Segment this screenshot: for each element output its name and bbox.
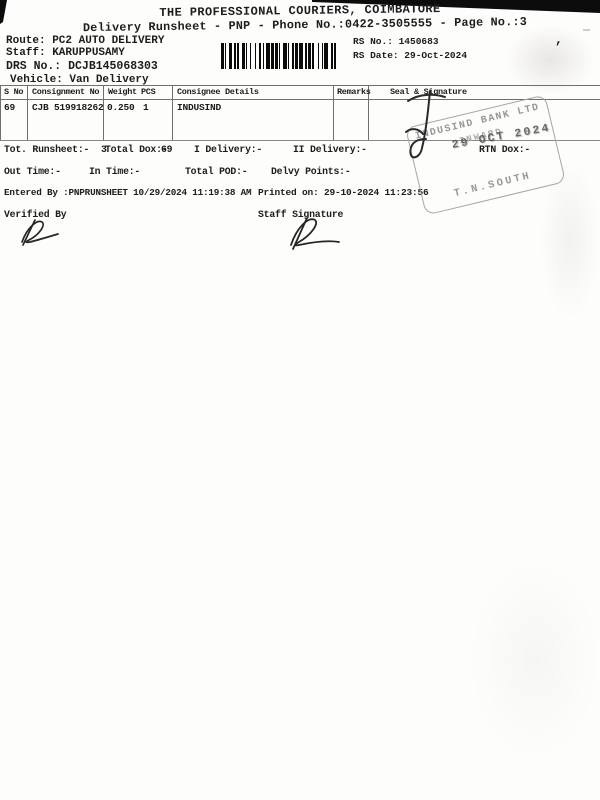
col-header-consignment: Consignment No [32, 88, 99, 97]
rtn-dox-label: RTN Dox:- [479, 145, 530, 156]
table-col-border [172, 85, 173, 140]
route-field: Route: PC2 AUTO DELIVERY [6, 35, 164, 47]
verified-by-signature [16, 217, 62, 247]
col-header-consignee: Consignee Details [177, 88, 259, 97]
cell-sno: 69 [4, 103, 15, 113]
seal-signature [398, 88, 454, 170]
col-header-pcs: PCS [141, 88, 155, 97]
table-top-border [0, 85, 600, 86]
ii-delivery-label: II Delivery:- [293, 145, 367, 156]
entered-by-line: Entered By :PNPRUNSHEET 10/29/2024 11:19… [4, 188, 251, 198]
table-col-border [333, 85, 334, 140]
tot-runsheet-label: Tot. Runsheet:- [4, 145, 89, 156]
scan-edge-top-left [0, 0, 12, 26]
i-delivery-label: I Delivery:- [194, 145, 262, 156]
total-dox-value: 69 [161, 145, 172, 156]
barcode-bar [336, 43, 339, 69]
col-header-remarks: Remarks [337, 88, 371, 97]
table-header-border [0, 99, 600, 100]
scan-smudge [470, 560, 600, 760]
rs-date-field: RS Date: 29-Oct-2024 [353, 51, 467, 61]
total-dox-label: Total Dox:- [105, 145, 167, 156]
staff-field: Staff: KARUPPUSAMY [6, 47, 125, 59]
document-subtitle: Delivery Runsheet - PNP - Phone No.:0422… [83, 16, 527, 35]
scan-smudge [540, 160, 600, 320]
cell-consignee: INDUSIND [177, 103, 221, 113]
total-pod-label: Total POD:- [185, 167, 247, 178]
rs-no-field: RS No.: 1450683 [353, 37, 439, 47]
table-col-border [27, 85, 28, 140]
drs-no-field: DRS No.: DCJB145068303 [6, 61, 158, 74]
cell-pcs: 1 [143, 103, 149, 113]
table-col-border [0, 85, 1, 140]
scan-speck [583, 29, 590, 31]
cell-consignment: CJB 519918262 [32, 103, 104, 113]
staff-signature-mark [281, 214, 343, 252]
in-time-label: In Time:- [89, 167, 140, 178]
printed-on-line: Printed on: 29-10-2024 11:23:56 [258, 188, 429, 198]
delvy-points-label: Delvy Points:- [271, 167, 351, 178]
out-time-label: Out Time:- [4, 167, 61, 178]
stray-ink-mark: , [555, 33, 563, 47]
cell-weight: 0.250 [107, 103, 135, 113]
drs-barcode [221, 43, 338, 69]
runsheet-document: THE PROFESSIONAL COURIERS, COIMBATORE De… [0, 0, 600, 800]
col-header-weight: Weight [108, 88, 137, 97]
col-header-sno: S No [4, 88, 23, 97]
